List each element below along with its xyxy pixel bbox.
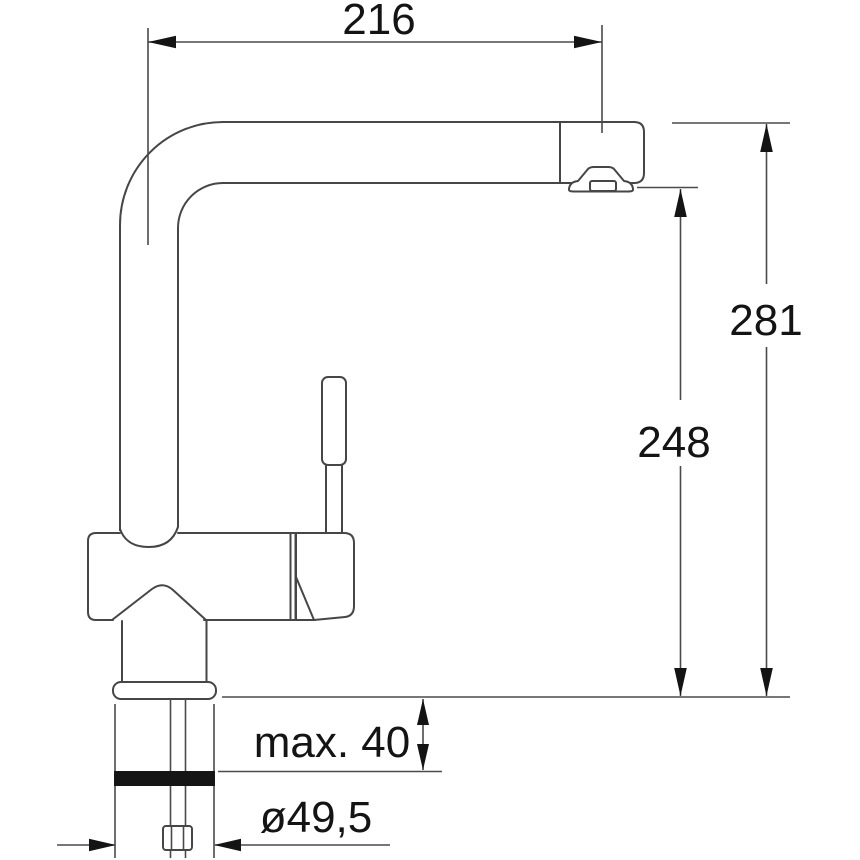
handle-lever xyxy=(322,377,346,465)
dim-label-outlet-height: 248 xyxy=(637,418,710,467)
base-flange xyxy=(113,682,216,699)
faucet-dimension-diagram: 216 281 248 max. 40 ø49,5 xyxy=(0,0,860,860)
arrowhead-216-left xyxy=(148,36,176,48)
aerator-insert xyxy=(590,181,616,191)
spout-outline xyxy=(120,122,644,531)
handle-stem xyxy=(326,464,342,533)
arrowhead-281-down xyxy=(760,668,773,696)
arrowhead-248-up xyxy=(674,189,687,217)
arrowhead-diameter-right xyxy=(214,839,241,851)
technical-drawing: 216 281 248 max. 40 ø49,5 xyxy=(0,0,860,860)
arrowhead-max40-up xyxy=(417,699,429,725)
arrowhead-248-down xyxy=(674,668,687,696)
dim-label-deck-thickness: max. 40 xyxy=(254,718,411,767)
handle-housing xyxy=(296,533,354,620)
arrowhead-281-up xyxy=(760,124,773,152)
arrowhead-diameter-left xyxy=(89,839,116,851)
dim-label-hole-diameter: ø49,5 xyxy=(260,793,373,842)
dim-label-total-height: 281 xyxy=(729,296,802,345)
base-column xyxy=(122,621,207,682)
arrowhead-max40-down xyxy=(417,744,429,770)
dim-label-spout-reach: 216 xyxy=(342,0,415,44)
arrowhead-216-right xyxy=(574,36,602,48)
seal-washer-band xyxy=(114,771,215,786)
mounting-nut xyxy=(163,826,192,850)
